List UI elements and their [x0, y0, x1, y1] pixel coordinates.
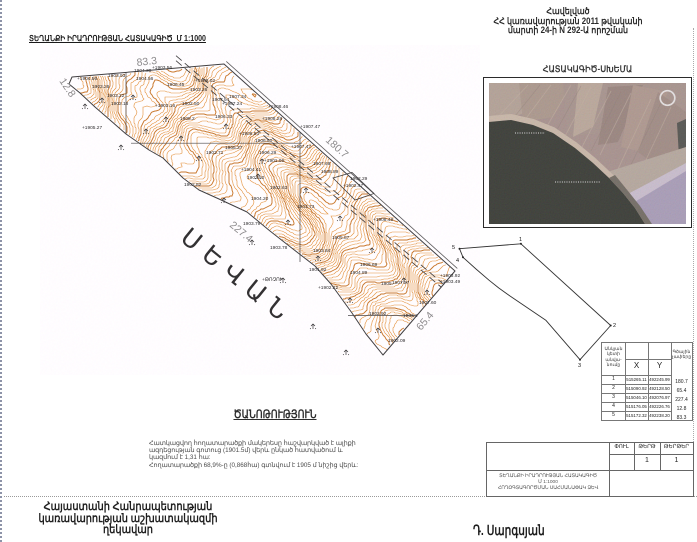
svg-text:4: 4: [456, 258, 459, 264]
svg-text:2: 2: [613, 323, 616, 329]
svg-text:5: 5: [452, 245, 455, 251]
svg-text:3: 3: [578, 363, 581, 369]
svg-text:1: 1: [519, 237, 522, 243]
